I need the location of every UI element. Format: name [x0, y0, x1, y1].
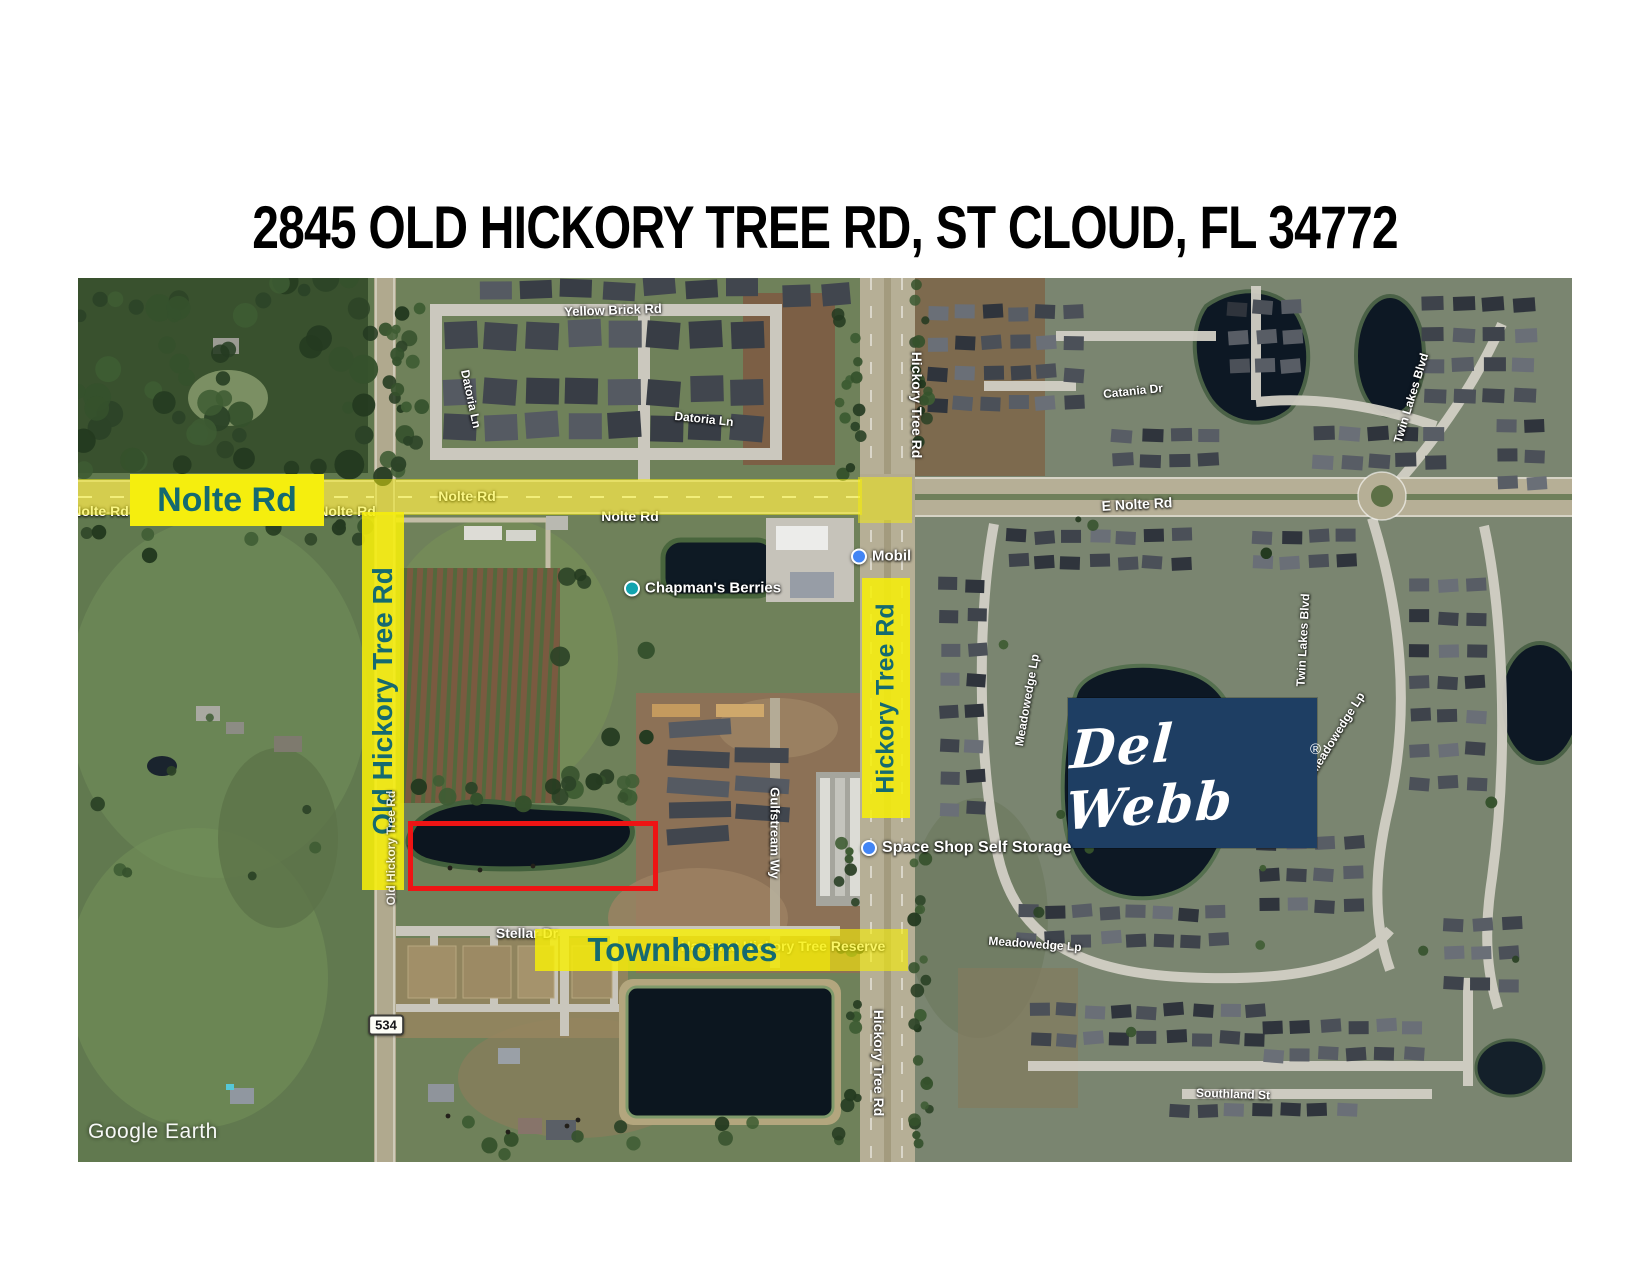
- flyer-page: { "title": "2845 OLD HICKORY TREE RD, ST…: [0, 0, 1650, 1275]
- place-pin-icon: [851, 548, 867, 564]
- satellite-map: Nolte RdNolte RdNolte RdNolte RdE Nolte …: [78, 278, 1572, 1162]
- place-label: Space Shop Self Storage: [861, 839, 1071, 857]
- place-label: Mobil: [851, 548, 911, 565]
- road-label: Old Hickory Tree Rd: [384, 791, 398, 906]
- route-shield-534: 534: [368, 1015, 404, 1036]
- place-name: Chapman's Berries: [645, 580, 781, 597]
- place-name: Space Shop Self Storage: [882, 839, 1071, 857]
- place-pin-icon: [861, 840, 877, 856]
- google-earth-watermark: Google Earth: [88, 1120, 218, 1144]
- place-name: Mobil: [872, 548, 911, 565]
- place-pin-icon: [624, 580, 640, 596]
- page-title: 2845 OLD HICKORY TREE RD, ST CLOUD, FL 3…: [165, 193, 1485, 262]
- map-pins-layer: Old Hickory Tree RdChapman's BerriesMobi…: [78, 278, 1572, 1162]
- place-label: Chapman's Berries: [624, 580, 781, 597]
